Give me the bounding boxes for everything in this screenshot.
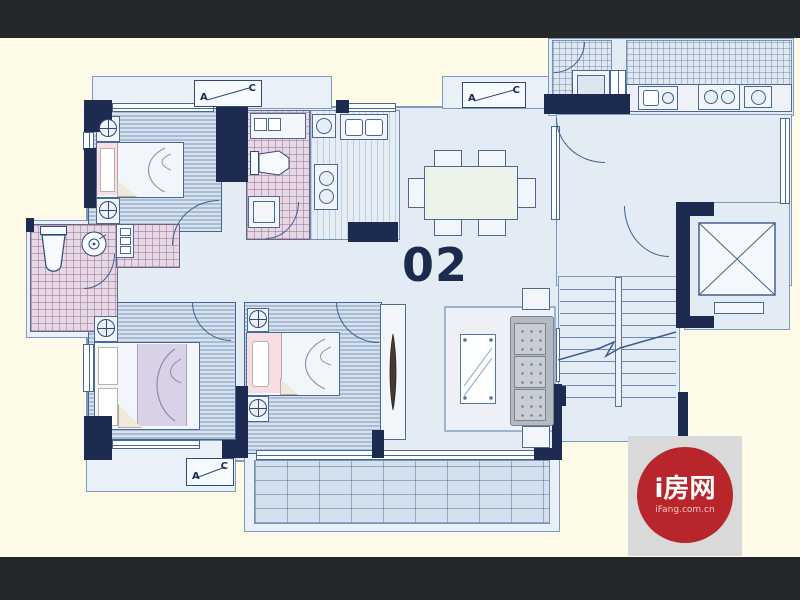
basin-bowl <box>316 118 332 134</box>
vanity-basin <box>254 118 267 131</box>
sink-basin <box>345 119 363 136</box>
stove-burner <box>319 171 334 186</box>
balcony-bottom-tiles <box>254 460 550 524</box>
stair-break-line <box>558 322 678 366</box>
neighbor-stove <box>698 84 740 110</box>
neighbor-sink <box>638 86 678 110</box>
ac-unit-top-right: A C <box>462 82 526 108</box>
blanket-curves <box>141 347 185 423</box>
wall-elevator-w <box>676 202 690 328</box>
bathroom2-shelf <box>116 224 134 258</box>
watermark-panel: i房网 iFang.com.cn <box>628 436 742 556</box>
wall-bedroom1-w <box>84 148 96 208</box>
bedroom1-pillow <box>100 148 115 192</box>
shelf-box <box>120 228 131 236</box>
wall-stair-se <box>678 392 688 440</box>
wall-master-sw <box>84 416 112 460</box>
bedroom2-bed <box>246 332 340 396</box>
master-window <box>83 344 94 392</box>
ac-letter-a: A <box>468 94 476 104</box>
basin-bowl <box>751 90 766 105</box>
bedroom1-bed <box>96 142 184 198</box>
sink-basin <box>662 92 674 104</box>
dining-table <box>424 166 518 220</box>
coffee-table <box>460 334 496 404</box>
master-pillow <box>98 347 118 385</box>
landing-window <box>780 118 790 204</box>
wall-kitchen-n <box>336 100 349 113</box>
dining-window <box>551 126 560 220</box>
wall-bathroom1-w <box>238 112 247 180</box>
shelf-box <box>120 237 131 245</box>
master-balcony-door <box>112 440 200 449</box>
floor-plan-canvas: A C A C A C <box>0 0 800 600</box>
bathroom1-toilet-icon <box>250 148 292 178</box>
elevator-sill <box>714 302 764 314</box>
ifang-logo: i房网 iFang.com.cn <box>637 447 733 543</box>
vanity-basin <box>268 118 281 131</box>
ac-unit-bottom-left: A C <box>186 458 234 486</box>
kitchen-stove <box>314 164 338 210</box>
bedroom2-lamp-top-icon <box>249 310 267 328</box>
sofa-cushion <box>514 389 546 421</box>
kitchen-sink <box>340 114 388 140</box>
sink-basin <box>365 119 383 136</box>
ifang-logo-title: i房网 <box>655 475 716 503</box>
bedroom1-lamp-bottom-icon <box>99 201 117 219</box>
living-balcony-slider <box>256 450 556 460</box>
ac-letter-c: C <box>221 462 228 472</box>
kitchen-window <box>342 103 396 112</box>
letterbox-bottom <box>0 557 800 600</box>
wall-bedroom2-se <box>372 430 384 458</box>
side-table-bottom <box>522 426 550 448</box>
ac-letter-a: A <box>192 472 200 482</box>
ac-letter-c: C <box>513 86 520 96</box>
unit-number: 02 <box>402 238 468 292</box>
sofa <box>510 316 554 426</box>
ac-letter-a: A <box>200 93 208 103</box>
bedroom2-pillow <box>252 341 269 387</box>
wall-kitchen-s <box>348 222 398 242</box>
wall-balcony-junction <box>222 440 248 458</box>
bathroom1-vanity <box>250 113 306 139</box>
wall-entry-n <box>544 94 630 114</box>
elevator-car <box>698 222 776 296</box>
bedroom1-lamp-top-icon <box>99 119 117 137</box>
sofa-cushion <box>514 323 546 355</box>
letterbox-top <box>0 0 800 38</box>
ac-letter-c: C <box>249 84 256 94</box>
wall-elevator-n <box>676 202 714 216</box>
bathroom2-toilet-icon <box>38 226 70 276</box>
dining-chair <box>516 178 536 208</box>
blanket-curves <box>129 146 175 194</box>
stove-burner <box>721 90 735 104</box>
kitchen-corner-basin <box>312 114 336 138</box>
sofa-cushion <box>514 356 546 388</box>
wall-bathroom2-nw <box>26 218 34 232</box>
neighbor-basin2 <box>744 86 772 108</box>
tv-icon <box>386 334 400 410</box>
side-table-top <box>522 288 550 310</box>
wall-elevator-s <box>676 316 714 328</box>
bathroom2-basin-icon <box>80 230 108 258</box>
stove-burner <box>319 189 334 204</box>
master-lamp-icon <box>97 319 115 337</box>
sink-basin <box>643 90 659 106</box>
bedroom2-lamp-bottom-icon <box>249 399 267 417</box>
wall-stair-sw <box>556 386 566 406</box>
shelf-box <box>120 246 131 254</box>
ifang-logo-domain: iFang.com.cn <box>655 505 714 515</box>
neighbor-kitchen-tiles <box>626 40 792 86</box>
blanket-curves <box>287 337 335 391</box>
ac-unit-top-left: A C <box>194 80 262 107</box>
stove-burner <box>704 90 718 104</box>
